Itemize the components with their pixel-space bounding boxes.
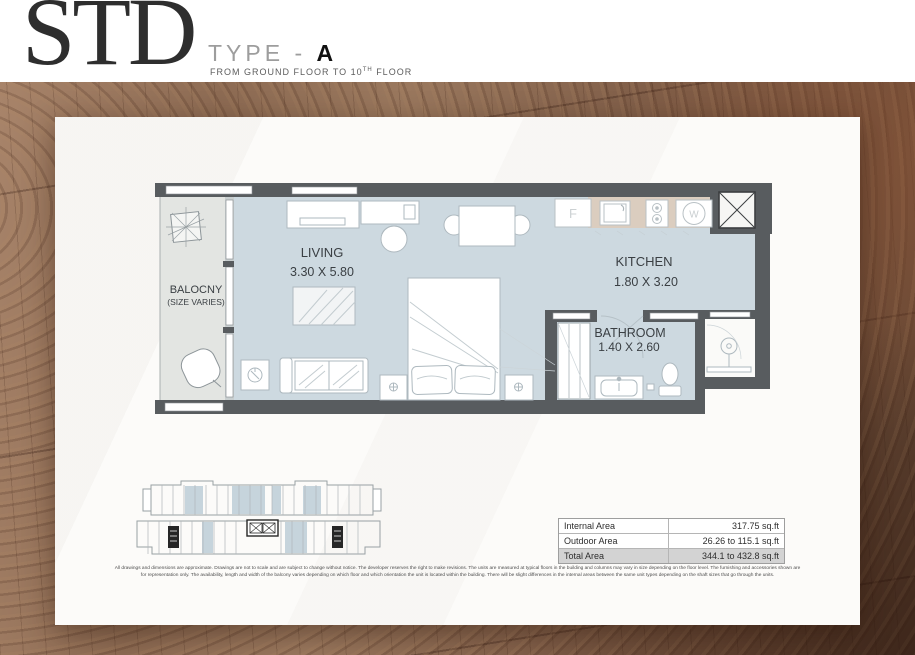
row-value: 317.75 sq.ft xyxy=(669,519,784,533)
living-dims: 3.30 X 5.80 xyxy=(290,265,354,279)
washing-machine: W xyxy=(676,200,712,227)
kitchen-label: KITCHEN xyxy=(615,254,672,269)
living-label: LIVING xyxy=(301,245,344,260)
row-label: Total Area xyxy=(559,549,669,563)
vanity-sink xyxy=(595,376,643,399)
balcony-note: (SIZE VARIES) xyxy=(167,297,225,307)
bathroom-top-inset xyxy=(650,313,698,319)
type-letter: A xyxy=(317,40,334,66)
balcony-top-window xyxy=(166,186,252,194)
keyplan-elevator-core xyxy=(247,520,278,536)
shower-bottom-wall xyxy=(698,377,770,389)
row-label: Outdoor Area xyxy=(559,534,669,548)
bathroom-label: BATHROOM xyxy=(594,326,665,340)
keyplan-highlight-units-top xyxy=(185,486,321,514)
unit-type-label: TYPE - A xyxy=(208,40,333,67)
stove xyxy=(646,200,668,227)
balcony-bottom-window xyxy=(165,403,223,411)
row-label: Internal Area xyxy=(559,519,669,533)
kitchen-sink xyxy=(600,201,630,225)
south-wall xyxy=(228,400,705,414)
table-row-internal: Internal Area 317.75 sq.ft xyxy=(559,519,784,533)
disclaimer-line-2: for representation only. The availabilit… xyxy=(73,572,842,579)
row-value: 344.1 to 432.8 sq.ft xyxy=(669,549,784,563)
service-shaft xyxy=(719,192,755,228)
floor-plan: F xyxy=(155,183,772,414)
closet xyxy=(558,323,590,399)
floors-range-label: FROM GROUND FLOOR TO 10TH FLOOR xyxy=(210,67,412,77)
bathroom-bin xyxy=(647,384,654,390)
balcony-label: BALOCNY xyxy=(170,284,223,296)
fridge-letter: F xyxy=(569,206,577,221)
sofa xyxy=(280,358,368,393)
fridge: F xyxy=(555,199,591,227)
bathroom-west-wall xyxy=(545,310,557,400)
unit-code-title: STD xyxy=(22,0,194,80)
nightstand-right xyxy=(505,375,533,400)
key-plan xyxy=(137,481,381,554)
bathroom-dims: 1.40 X 2.60 xyxy=(598,340,660,354)
type-word: TYPE - xyxy=(208,40,317,66)
row-value: 26.26 to 115.1 sq.ft xyxy=(669,534,784,548)
brochure-page: STD TYPE - A FROM GROUND FLOOR TO 10TH F… xyxy=(0,0,915,655)
kitchen-dims: 1.80 X 3.20 xyxy=(614,275,678,289)
bed xyxy=(408,278,500,400)
tv-console xyxy=(287,201,419,228)
closet-top-inset xyxy=(553,313,590,319)
nightstand-left xyxy=(380,375,407,400)
table-row-outdoor: Outdoor Area 26.26 to 115.1 sq.ft xyxy=(559,533,784,548)
armchair xyxy=(381,226,407,252)
washer-letter: W xyxy=(689,210,699,221)
living-north-window xyxy=(292,187,357,194)
disclaimer-line-1: All drawings and dimensions are approxim… xyxy=(73,565,842,572)
table-row-total: Total Area 344.1 to 432.8 sq.ft xyxy=(559,548,784,563)
plant-icon xyxy=(166,207,206,247)
shower-top-inset xyxy=(710,312,750,317)
side-table xyxy=(241,360,269,390)
plan-sheet: F xyxy=(55,117,860,625)
rug xyxy=(293,287,355,325)
disclaimer: All drawings and dimensions are approxim… xyxy=(73,565,842,579)
area-table: Internal Area 317.75 sq.ft Outdoor Area … xyxy=(558,518,785,564)
